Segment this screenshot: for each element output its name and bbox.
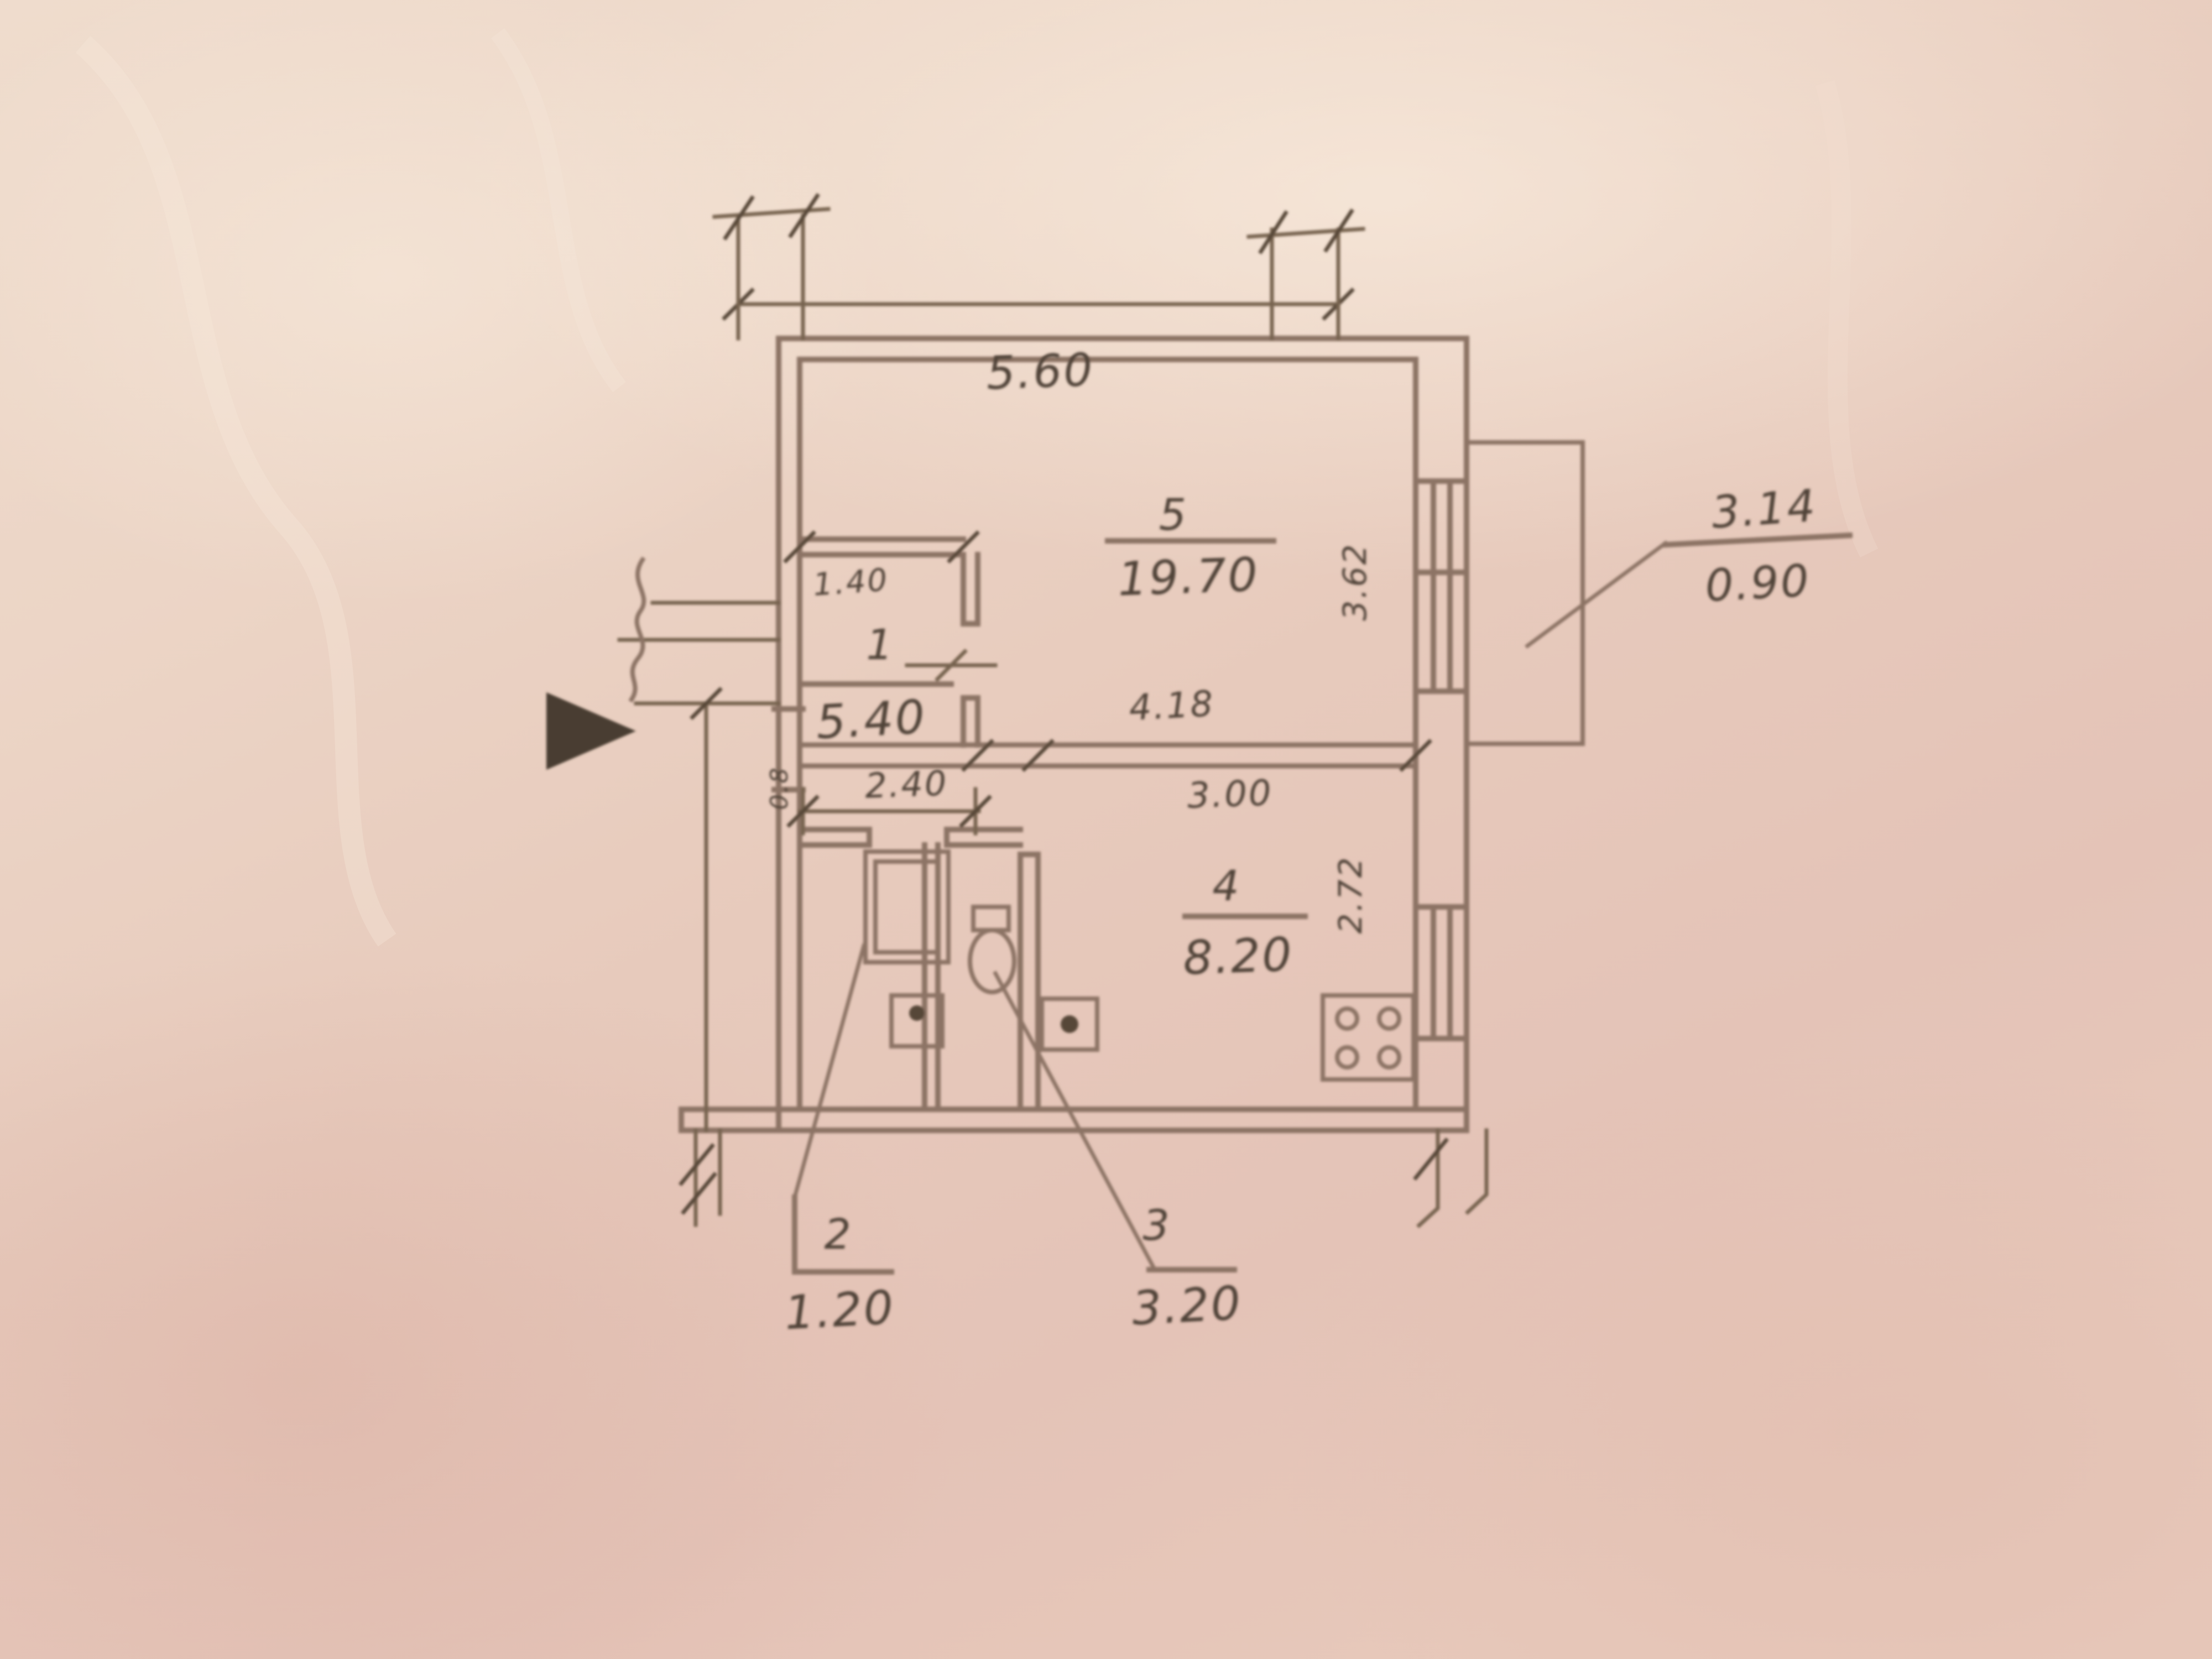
living-room-number: 5 xyxy=(1159,491,1188,540)
dim-corridor-width: 2.40 xyxy=(864,763,949,806)
wc-area: 3.20 xyxy=(1131,1276,1244,1335)
washbasin-tap xyxy=(909,1005,925,1021)
dim-entry-width: 0.8 xyxy=(765,766,794,810)
dim-kitchen-width: 3.00 xyxy=(1187,773,1274,816)
dim-living-depth: 3.62 xyxy=(1336,542,1374,620)
dim-kitchen-depth: 2.72 xyxy=(1332,855,1369,933)
dim-hall-width: 1.40 xyxy=(812,562,890,603)
bath-area: 1.20 xyxy=(784,1280,896,1340)
living-room-area: 19.70 xyxy=(1117,547,1260,607)
balcony-reduced-area: 0.90 xyxy=(1704,555,1812,612)
hall-number: 1 xyxy=(866,620,894,669)
hall-area: 5.40 xyxy=(815,690,928,749)
paper-background xyxy=(0,0,2212,1659)
bath-number: 2 xyxy=(824,1209,852,1259)
wc-number: 3 xyxy=(1142,1201,1171,1250)
kitchen-area: 8.20 xyxy=(1182,927,1294,985)
kitchen-sink-drain xyxy=(1061,1015,1078,1033)
kitchen-number: 4 xyxy=(1212,861,1240,910)
balcony-area: 3.14 xyxy=(1710,480,1818,539)
dim-living-width: 4.18 xyxy=(1128,684,1215,729)
dim-top-width: 5.60 xyxy=(985,344,1095,400)
floorplan-photo: 5.60 5 19.70 1 5.40 4 8.20 2 1.20 3 3.20… xyxy=(0,0,2212,1659)
plan-svg: 5.60 5 19.70 1 5.40 4 8.20 2 1.20 3 3.20… xyxy=(0,0,2212,1659)
